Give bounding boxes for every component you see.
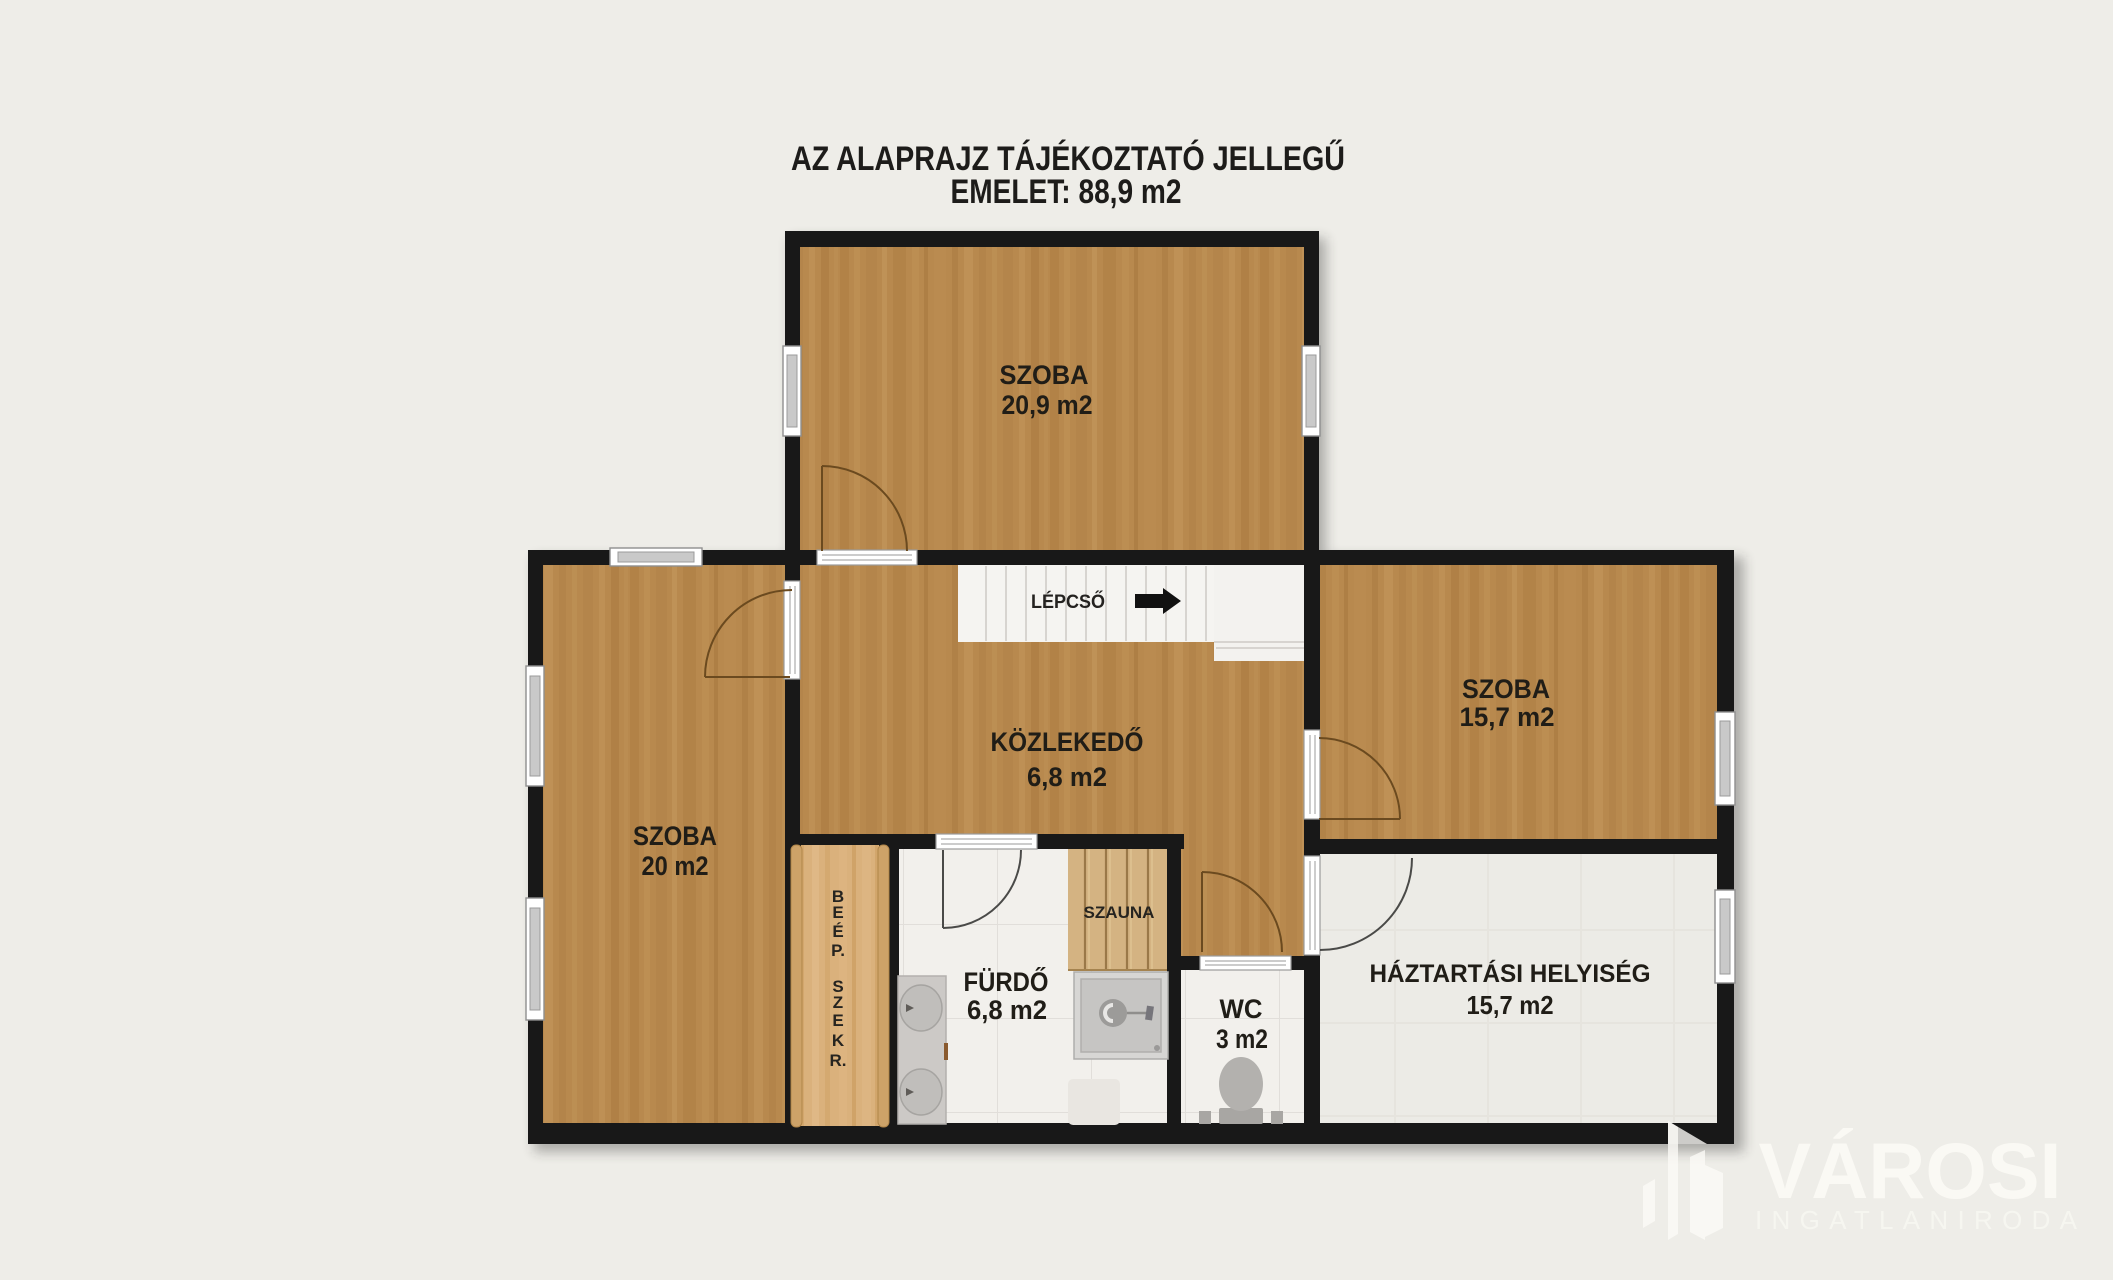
svg-text:3 m2: 3 m2 <box>1216 1024 1268 1054</box>
svg-text:HÁZTARTÁSI HELYISÉG: HÁZTARTÁSI HELYISÉG <box>1370 959 1651 988</box>
svg-text:R.: R. <box>830 1051 847 1070</box>
svg-text:SZOBA: SZOBA <box>1000 360 1089 390</box>
svg-text:KÖZLEKEDŐ: KÖZLEKEDŐ <box>991 726 1144 757</box>
svg-text:LÉPCSŐ: LÉPCSŐ <box>1031 591 1105 613</box>
svg-text:VÁROSI: VÁROSI <box>1759 1126 2062 1215</box>
svg-text:E: E <box>832 903 843 922</box>
svg-text:Z: Z <box>833 993 843 1012</box>
svg-text:SZOBA: SZOBA <box>1462 674 1550 704</box>
svg-text:6,8 m2: 6,8 m2 <box>1027 762 1107 792</box>
svg-text:FÜRDŐ: FÜRDŐ <box>964 966 1049 997</box>
svg-text:WC: WC <box>1220 994 1263 1024</box>
svg-text:SZAUNA: SZAUNA <box>1084 903 1155 922</box>
svg-text:E: E <box>832 1011 843 1030</box>
svg-text:É: É <box>832 922 843 941</box>
svg-text:K: K <box>832 1031 845 1050</box>
svg-text:P.: P. <box>831 941 845 960</box>
svg-text:15,7 m2: 15,7 m2 <box>1460 702 1555 732</box>
svg-text:SZOBA: SZOBA <box>633 821 717 851</box>
svg-text:6,8 m2: 6,8 m2 <box>967 995 1047 1025</box>
svg-text:EMELET: 88,9 m2: EMELET: 88,9 m2 <box>951 173 1182 211</box>
svg-text:20,9 m2: 20,9 m2 <box>1002 390 1093 420</box>
svg-text:15,7 m2: 15,7 m2 <box>1467 990 1554 1020</box>
svg-text:20 m2: 20 m2 <box>642 851 709 881</box>
